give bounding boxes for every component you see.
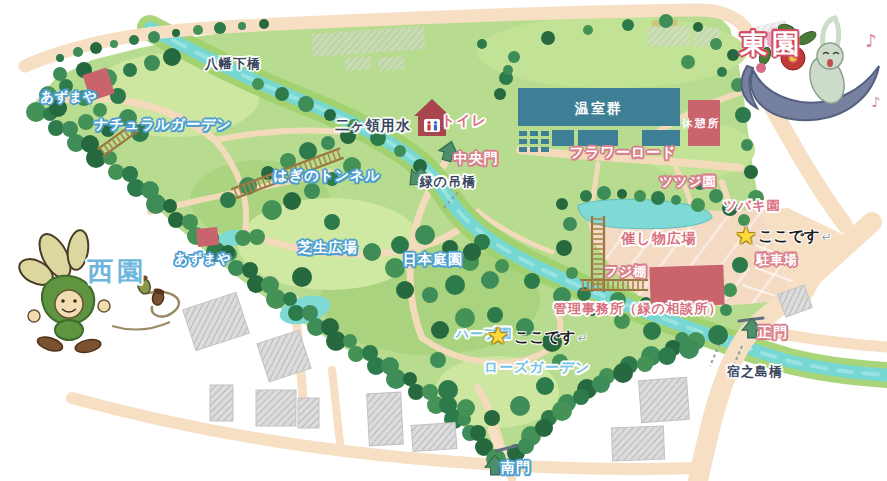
west-mascot-character xyxy=(15,229,179,355)
park-map-illustration xyxy=(0,0,887,481)
singing-mouth xyxy=(827,59,833,67)
greenhouse-main xyxy=(518,88,680,126)
admin-office-building xyxy=(649,265,724,308)
face xyxy=(55,290,83,318)
rest-house-building xyxy=(688,100,720,146)
hand-left xyxy=(28,310,40,322)
foot-right xyxy=(74,337,102,354)
body xyxy=(55,320,83,340)
azumaya-west-building xyxy=(196,227,219,247)
greenhouse-small-grid xyxy=(519,131,549,152)
toilet-male-icon xyxy=(434,121,437,124)
acorns xyxy=(135,274,165,306)
hand-right xyxy=(98,300,110,312)
park-guide-map: 八幡下橋あずまやナチュラルガーデン二ヶ領用水トイレ中央門温室群休憩所フラワーロー… xyxy=(0,0,887,481)
toilet-female-icon xyxy=(427,121,430,124)
